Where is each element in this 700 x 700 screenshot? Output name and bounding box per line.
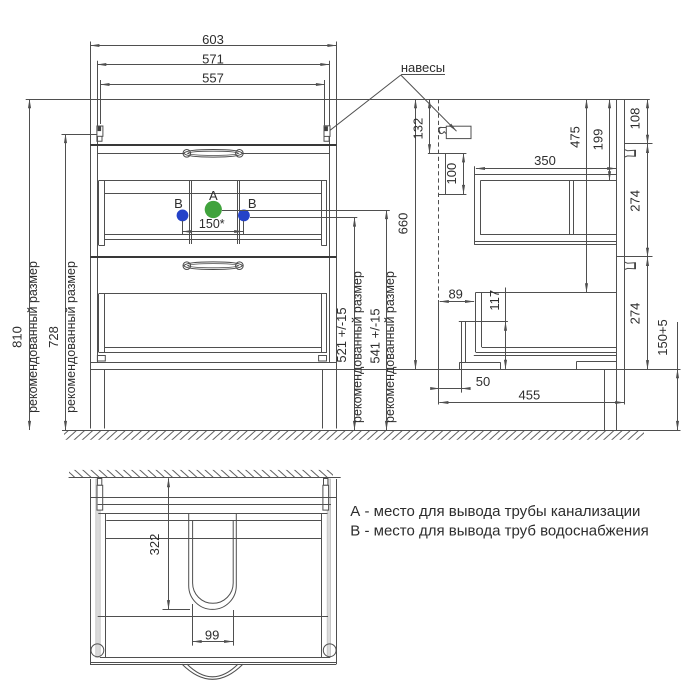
svg-text:132: 132 xyxy=(411,118,426,140)
svg-text:660: 660 xyxy=(396,213,411,235)
svg-text:89: 89 xyxy=(448,286,462,301)
svg-text:99: 99 xyxy=(205,627,219,642)
svg-text:B: B xyxy=(248,196,257,211)
svg-text:150+5: 150+5 xyxy=(655,319,670,356)
svg-text:B: B xyxy=(174,196,183,211)
svg-text:рекомендованный размер: рекомендованный размер xyxy=(26,261,40,413)
svg-text:150*: 150* xyxy=(199,217,225,231)
svg-text:322: 322 xyxy=(147,534,162,556)
svg-text:А - место для вывода трубы кан: А - место для вывода трубы канализации xyxy=(350,503,640,520)
svg-text:455: 455 xyxy=(519,387,541,402)
svg-text:274: 274 xyxy=(628,190,643,212)
svg-text:A: A xyxy=(209,188,218,203)
svg-text:350: 350 xyxy=(534,153,556,168)
svg-text:557: 557 xyxy=(202,71,224,86)
svg-text:521 +/-15: 521 +/-15 xyxy=(334,307,349,362)
svg-text:274: 274 xyxy=(628,303,643,325)
svg-text:199: 199 xyxy=(591,129,606,151)
svg-text:108: 108 xyxy=(628,108,643,130)
svg-text:571: 571 xyxy=(202,51,224,66)
svg-text:рекомендованный размер: рекомендованный размер xyxy=(64,261,78,413)
svg-text:рекомендованный размер: рекомендованный размер xyxy=(383,271,397,423)
svg-text:810: 810 xyxy=(10,326,25,348)
svg-text:В - место для вывода труб водо: В - место для вывода труб водоснабжения xyxy=(350,523,648,540)
svg-text:541 +/-15: 541 +/-15 xyxy=(368,308,383,363)
svg-text:475: 475 xyxy=(568,126,583,148)
svg-text:100: 100 xyxy=(444,163,459,185)
svg-text:603: 603 xyxy=(202,32,224,47)
svg-text:рекомендованный размер: рекомендованный размер xyxy=(350,271,364,423)
svg-text:50: 50 xyxy=(476,374,490,389)
svg-text:навесы: навесы xyxy=(401,60,445,75)
svg-text:117: 117 xyxy=(487,290,502,311)
svg-text:728: 728 xyxy=(46,326,61,348)
